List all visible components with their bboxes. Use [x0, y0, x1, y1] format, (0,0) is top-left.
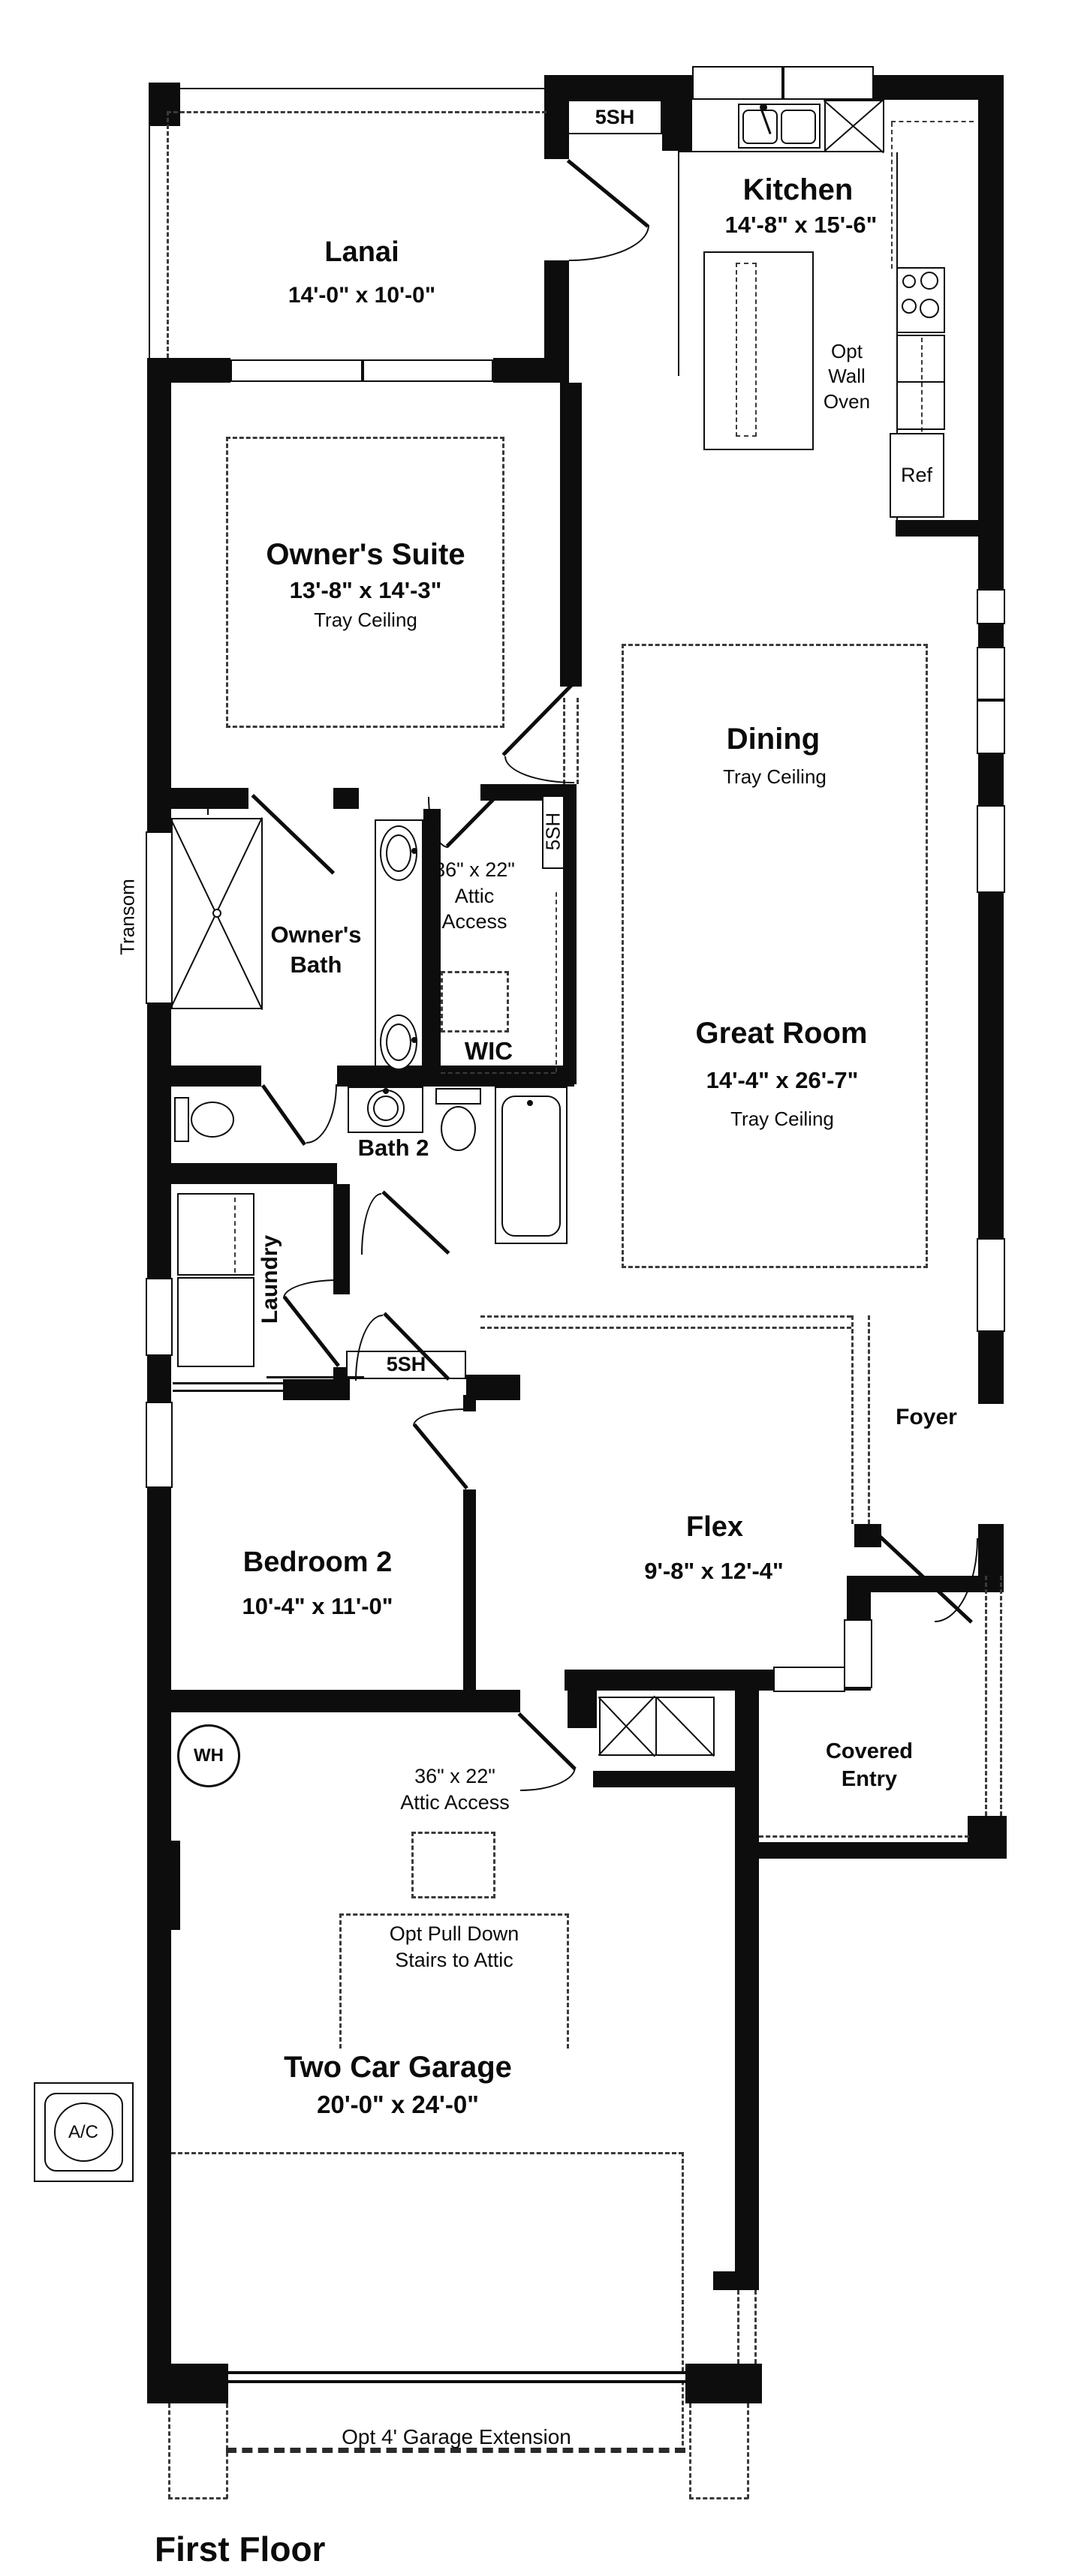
burner-icon	[902, 275, 916, 288]
lanai-edge	[149, 88, 569, 89]
wall	[568, 1690, 597, 1728]
wall-garage-stub	[713, 2271, 759, 2290]
lanai-screen-dash	[167, 111, 169, 358]
lanai-screen-dash	[167, 111, 547, 113]
wall	[147, 1163, 337, 1184]
wall-bath-wic	[423, 809, 441, 1066]
ac-label: A/C	[68, 2121, 98, 2145]
porch-edge-dash	[759, 1835, 969, 1838]
door-arc	[413, 1408, 465, 1426]
wall	[283, 1379, 346, 1400]
wall-suite-right	[560, 383, 582, 687]
sink-round-inner	[373, 1096, 399, 1121]
covered-entry-label: Covered Entry	[826, 1738, 913, 1793]
wall-garage-corner	[685, 2364, 762, 2403]
bath2-label: Bath 2	[358, 1133, 429, 1163]
attic-access-garage-note: 36" x 22" Attic Access	[400, 1763, 510, 1815]
extension-outline-dash	[689, 2403, 691, 2499]
door-arc	[935, 1538, 978, 1622]
closet-shelf	[173, 1390, 283, 1392]
toilet-bowl	[441, 1106, 476, 1151]
wall-left	[147, 1002, 171, 1280]
wall-top	[874, 75, 1004, 100]
wall	[147, 358, 230, 383]
bedroom2-label: Bedroom 2	[243, 1544, 392, 1581]
porch-edge-dash	[1000, 1576, 1002, 1816]
wall-left	[147, 1354, 171, 1403]
kitchen-dims: 14'-8" x 15'-6"	[725, 210, 878, 240]
flex-label: Flex	[686, 1509, 743, 1546]
door-lanai-kitchen	[567, 159, 649, 227]
wall	[493, 358, 569, 383]
window-entry	[844, 1619, 872, 1688]
owners-suite-label: Owner's Suite	[266, 536, 465, 574]
upper-cabinet-dash	[891, 122, 893, 269]
lanai-edge	[149, 88, 150, 359]
wall	[544, 100, 569, 159]
extension-outline-dash	[747, 2403, 749, 2499]
garage-label: Two Car Garage	[284, 2048, 512, 2087]
flex-opening-dash	[480, 1327, 851, 1329]
window-laundry	[146, 1278, 173, 1356]
wic-shelf-dash	[441, 1072, 556, 1074]
flex-opening-dash	[480, 1315, 851, 1318]
wall-bedroom-bottom	[147, 1690, 520, 1712]
garage-extension-note: Opt 4' Garage Extension	[342, 2424, 571, 2451]
faucet-icon	[527, 1100, 533, 1106]
kitchen-island	[703, 251, 814, 450]
lanai-slider-panel	[363, 359, 493, 382]
wall	[171, 1066, 261, 1087]
garage-extension-dash	[171, 2152, 683, 2154]
wall-left-pilaster	[147, 1841, 180, 1930]
door-water-closet	[261, 1084, 306, 1146]
closet-shelf	[173, 1382, 283, 1384]
foyer-opening-dash	[851, 1315, 854, 1524]
dining-ceiling: Tray Ceiling	[723, 765, 827, 789]
window-5sh-hall-label: 5SH	[387, 1351, 426, 1378]
bathtub-inner	[501, 1096, 561, 1237]
porch-edge-dash	[985, 1576, 987, 1816]
transom-label: Transom	[116, 879, 140, 955]
flex-dims: 9'-8" x 12'-4"	[644, 1556, 783, 1586]
floor-plan: Lanai 14'-0" x 10'-0" Kitchen 14'-8" x 1…	[0, 0, 1081, 2576]
bedroom2-dims: 10'-4" x 11'-0"	[242, 1592, 393, 1622]
wall-wic-right	[563, 784, 577, 1084]
wall	[333, 788, 359, 809]
wall-right	[978, 1332, 1004, 1404]
burner-icon	[920, 299, 939, 318]
wall-bedroom-right	[463, 1489, 476, 1690]
burner-icon	[920, 272, 938, 290]
window-flex-front	[773, 1667, 845, 1692]
wall-right	[978, 893, 1004, 1238]
upper-cabinet-dash	[891, 121, 974, 122]
wall-left	[147, 383, 171, 833]
window-5sh-kitchen-label: 5SH	[595, 104, 635, 131]
wall	[337, 1066, 574, 1087]
extension-outline-dash	[168, 2497, 227, 2499]
dryer	[177, 1277, 254, 1367]
wic-shelf-dash	[556, 892, 557, 1072]
window-5sh-wic-label: 5SH	[542, 813, 565, 851]
sink-basin	[742, 110, 778, 144]
laundry-label: Laundry	[257, 1235, 283, 1324]
kitchen-label: Kitchen	[743, 171, 854, 209]
wall-right	[978, 1524, 1004, 1576]
lanai-dims: 14'-0" x 10'-0"	[288, 281, 435, 310]
opt-wall-oven-note: Opt Wall Oven	[824, 339, 870, 414]
attic-access-wic-note: 36" x 22" Attic Access	[434, 857, 515, 935]
window-right	[977, 1238, 1005, 1332]
owners-bath-label: Owner's Bath	[270, 920, 361, 979]
faucet-icon	[411, 848, 417, 854]
storage-divider	[655, 1697, 657, 1756]
washer	[177, 1193, 254, 1276]
extension-outline-dash	[168, 2403, 170, 2499]
door-arc	[361, 1193, 381, 1255]
wall-kitchen-stub	[896, 520, 978, 537]
toilet-bowl	[191, 1102, 234, 1138]
window-transom	[146, 831, 173, 1004]
wh-label: WH	[194, 1745, 224, 1768]
great-room-ceiling: Tray Ceiling	[730, 1107, 834, 1132]
great-room-dims: 14'-4" x 26'-7"	[706, 1066, 859, 1096]
lanai-label: Lanai	[324, 234, 399, 271]
sink-basin	[781, 110, 816, 144]
door-arc	[504, 756, 574, 783]
attic-access-square	[441, 971, 509, 1033]
wall-suite-door-stub	[569, 666, 582, 687]
window-right	[977, 589, 1005, 624]
window-bedroom2	[146, 1402, 173, 1488]
wall-right	[978, 754, 1004, 805]
wall	[544, 260, 569, 358]
wall-laundry	[333, 1184, 350, 1294]
wall-right	[978, 100, 1004, 589]
door-laundry	[283, 1296, 340, 1367]
foyer-label: Foyer	[896, 1403, 957, 1432]
toilet-tank	[435, 1088, 481, 1105]
dining-label: Dining	[727, 720, 820, 759]
door-owners-suite	[501, 684, 573, 756]
closet-shelf	[266, 1376, 364, 1378]
foyer-opening-dash	[868, 1315, 870, 1524]
garage-wall-dash	[737, 2290, 739, 2364]
garage-extension-dash	[682, 2152, 684, 2452]
garage-dims: 20'-0" x 24'-0"	[317, 2089, 479, 2121]
shower-head-icon	[207, 803, 209, 815]
window-right	[977, 700, 1005, 754]
sink-oval-inner	[386, 834, 411, 872]
lanai-slider-panel	[230, 359, 363, 382]
door-arc	[569, 225, 649, 261]
great-room-label: Great Room	[696, 1014, 868, 1053]
door-bath2	[381, 1191, 450, 1255]
window-right	[977, 805, 1005, 893]
wall-left	[147, 1930, 171, 2365]
wall	[662, 100, 692, 151]
shower-door	[251, 794, 336, 875]
toilet-tank	[174, 1097, 189, 1142]
wall-garage-corner	[147, 2364, 228, 2403]
door-arc	[283, 1279, 337, 1298]
extension-outline-dash	[689, 2497, 748, 2499]
door-arc	[306, 1084, 337, 1144]
wic-label: WIC	[465, 1036, 513, 1067]
opening-dash	[577, 698, 579, 784]
burner-icon	[902, 299, 917, 314]
cabinet-divider	[898, 381, 944, 383]
owners-suite-dims: 13'-8" x 14'-3"	[290, 576, 442, 606]
wall-alcove-bottom	[593, 1771, 735, 1787]
shower-drain	[212, 909, 221, 918]
kitchen-window-bay	[783, 66, 874, 100]
attic-access-square-garage	[411, 1832, 495, 1898]
kitchen-window-bay	[692, 66, 783, 100]
garage-wall-dash	[754, 2290, 757, 2364]
door-bedroom2	[413, 1423, 468, 1489]
ref-label: Ref	[901, 462, 932, 488]
wall-right	[978, 624, 1004, 647]
shower-head-icon	[204, 795, 212, 803]
door-arc	[355, 1315, 383, 1381]
counter-edge	[678, 151, 679, 376]
sink-oval-inner	[386, 1023, 411, 1061]
owners-suite-ceiling: Tray Ceiling	[314, 608, 417, 633]
page-title: First Floor	[155, 2529, 325, 2569]
garage-door	[228, 2371, 685, 2383]
wall-porch-post	[968, 1816, 1007, 1859]
faucet-icon	[411, 1037, 417, 1043]
faucet-icon	[383, 1088, 389, 1094]
door-wic	[446, 794, 498, 847]
wall-door-stub	[854, 1524, 881, 1547]
wall-left	[147, 1486, 171, 1842]
door-arc	[520, 1767, 576, 1791]
wall-garage-right	[735, 1670, 759, 2290]
window-right	[977, 647, 1005, 700]
pull-down-stairs-note: Opt Pull Down Stairs to Attic	[390, 1921, 519, 1973]
storage-shelves	[599, 1697, 715, 1756]
